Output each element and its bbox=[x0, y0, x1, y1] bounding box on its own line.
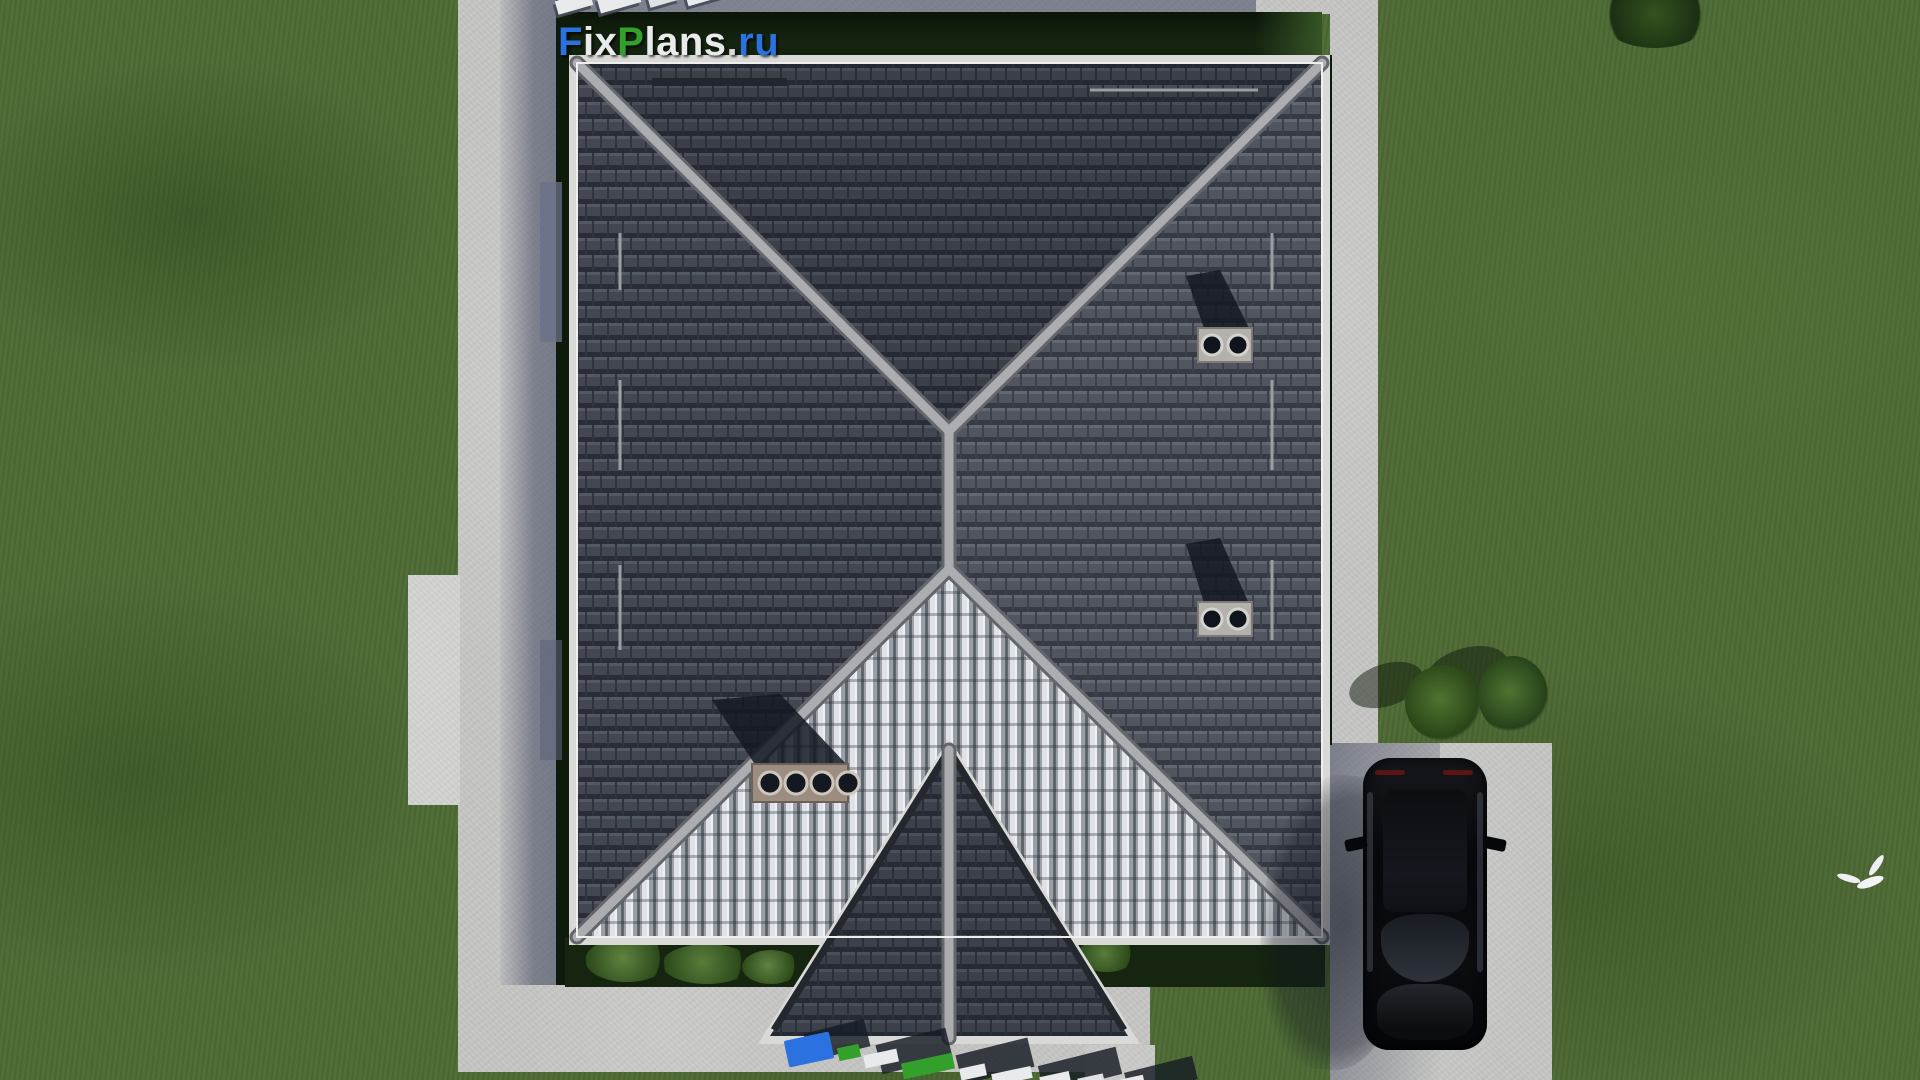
path-left-pad bbox=[408, 575, 460, 805]
watermark-letter-segment: F bbox=[558, 20, 583, 64]
bush bbox=[1478, 656, 1548, 734]
car-taillight-right bbox=[1443, 770, 1473, 775]
roof-vent-bar bbox=[652, 78, 787, 86]
chimney-two-pots-upper bbox=[1198, 328, 1252, 362]
bird-wing-left bbox=[1836, 872, 1861, 885]
aerial-render-scene: FixPlans.ru bbox=[0, 0, 1920, 1080]
fixplans-watermark: FixPlans.ru bbox=[558, 20, 779, 65]
car-body bbox=[1363, 758, 1487, 1050]
house-shadow-left bbox=[500, 0, 562, 985]
car-hood bbox=[1377, 984, 1473, 1040]
corner-tree bbox=[1600, 0, 1710, 48]
chimney-four-pots bbox=[752, 764, 859, 802]
car-highlight-left bbox=[1367, 792, 1373, 972]
car-roof-glass bbox=[1383, 790, 1467, 912]
hip-roof bbox=[556, 45, 1356, 1055]
bush bbox=[1405, 665, 1483, 741]
bird-wing-right bbox=[1867, 853, 1886, 877]
car-highlight-right bbox=[1477, 792, 1483, 972]
car-taillight-left bbox=[1375, 770, 1405, 775]
watermark-letter-segment: ru bbox=[738, 20, 779, 64]
watermark-letter-segment: . bbox=[727, 20, 739, 64]
watermark-letter-segment: ix bbox=[583, 20, 617, 64]
car-windshield bbox=[1381, 914, 1469, 982]
white-bird bbox=[1833, 849, 1905, 913]
watermark-letter-segment: lans bbox=[644, 20, 726, 64]
watermark-letter-segment: P bbox=[617, 20, 644, 64]
chimney-two-pots-lower bbox=[1198, 602, 1252, 636]
